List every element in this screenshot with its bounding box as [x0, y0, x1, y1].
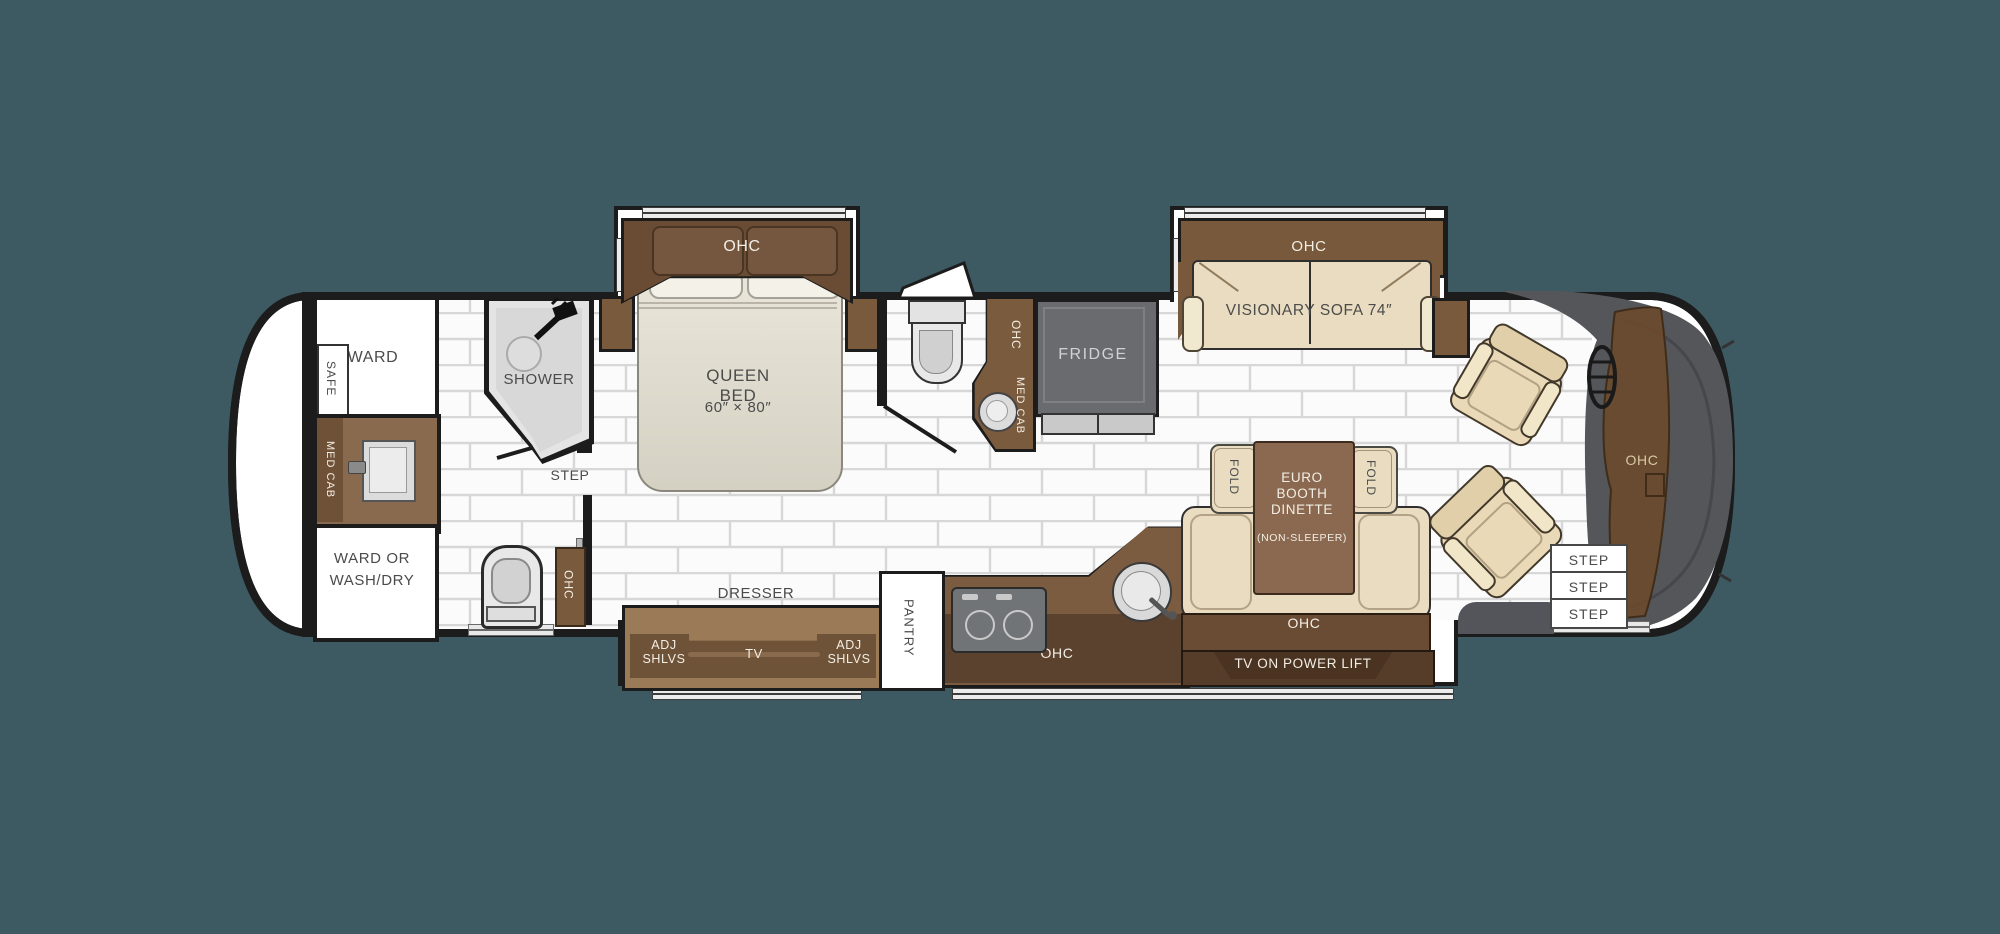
rear-toilet-bowl: [491, 558, 531, 604]
rear-vanity-faucet-icon: [348, 461, 366, 474]
cooktop-control-right: [996, 594, 1012, 600]
fridge-drawer-right: [1097, 413, 1155, 435]
kitchen-faucet-handle: [1168, 611, 1177, 620]
dinette-seat-line-left: [1190, 514, 1252, 610]
sofa-armrest-left: [1182, 296, 1204, 352]
half-bath-sink-basin: [986, 400, 1008, 422]
fold-right-label: FOLD: [1352, 450, 1390, 506]
bedroom-step-label: STEP: [544, 468, 596, 483]
coach-structure: [0, 0, 2000, 934]
threshold-rear2: [468, 630, 554, 636]
ward-washdry-line2: WASH/DRY: [318, 573, 426, 589]
queen-bed-label: QUEEN BED: [688, 377, 788, 395]
cooktop-burner-right: [1003, 610, 1033, 640]
half-bath-wall: [877, 294, 887, 406]
bed-fold-line2: [639, 307, 837, 309]
dinette-title-line3: DINETTE: [1258, 502, 1346, 517]
dinette-table: [1253, 441, 1355, 595]
rv-floor-plan: WARD SAFE MED CAB WARD OR WASH/DRY SHOWE…: [0, 0, 2000, 934]
adj-shlvs-right-line1: ADJ: [836, 638, 861, 652]
queen-bed-size-label: 60″ × 80″: [688, 400, 788, 416]
slide-rail: [652, 694, 862, 700]
ward-washdry-line1: WARD OR: [318, 551, 426, 567]
rear-toilet-base: [486, 606, 536, 622]
fold-left-label: FOLD: [1214, 448, 1254, 506]
bed-fold-line: [639, 302, 837, 304]
entry-step-2-label: STEP: [1569, 579, 1610, 595]
half-bath-medcab-label: MED CAB: [1008, 366, 1032, 446]
fridge-label: FRIDGE: [1043, 346, 1143, 364]
dinette-title-line1: EURO: [1258, 470, 1346, 485]
rear-ohc-label: OHC: [555, 549, 582, 621]
adj-shlvs-left-line2: SHLVS: [642, 652, 685, 666]
slide-rail: [952, 694, 1454, 700]
half-bath-ohc-label: OHC: [1004, 306, 1028, 364]
tv-lift-label: TV ON POWER LIFT: [1203, 656, 1403, 672]
entry-step-1-label: STEP: [1569, 552, 1610, 568]
half-bath-toilet-tank: [908, 300, 966, 324]
shower-head-icon: [528, 298, 588, 358]
dinette-seat-line-right: [1358, 514, 1420, 610]
dresser-label: DRESSER: [698, 586, 814, 602]
adj-shlvs-right-label: ADJ SHLVS: [818, 635, 880, 669]
dinette-subtitle: (NON-SLEEPER): [1254, 532, 1350, 545]
nightstand-left: [599, 296, 635, 352]
dinette-ohc-label: OHC: [1254, 614, 1354, 632]
adj-shlvs-left-label: ADJ SHLVS: [632, 635, 696, 669]
entry-step-well: [1458, 602, 1554, 634]
dinette-title-line2: BOOTH: [1258, 486, 1346, 501]
sofa-label: VISIONARY SOFA 74″: [1209, 303, 1409, 319]
pantry-label: PANTRY: [881, 573, 937, 683]
bedroom-wall-stub: [577, 444, 592, 453]
bath-window-wedge: [899, 263, 975, 298]
adj-shlvs-left-line1: ADJ: [651, 638, 676, 652]
rear-vanity-sink-basin: [369, 447, 407, 493]
bedroom-ohc-label: OHC: [692, 237, 792, 257]
rear-medcab-label: MED CAB: [317, 418, 343, 522]
cooktop-control-left: [962, 594, 978, 600]
half-bath-toilet-bowl: [919, 330, 953, 374]
front-ohc-label: OHC: [1612, 452, 1672, 468]
safe-label: SAFE: [319, 346, 343, 412]
cooktop-burner-left: [965, 610, 995, 640]
entry-step-3-label: STEP: [1569, 606, 1610, 622]
sofa-ohc-label: OHC: [1259, 237, 1359, 257]
sofa-end-cabinet: [1432, 298, 1470, 358]
fridge-drawer-left: [1041, 413, 1099, 435]
dresser-tv-label: TV: [738, 647, 770, 662]
adj-shlvs-right-line2: SHLVS: [827, 652, 870, 666]
entry-step-3: STEP: [1550, 598, 1628, 629]
shower-label: SHOWER: [494, 372, 584, 388]
